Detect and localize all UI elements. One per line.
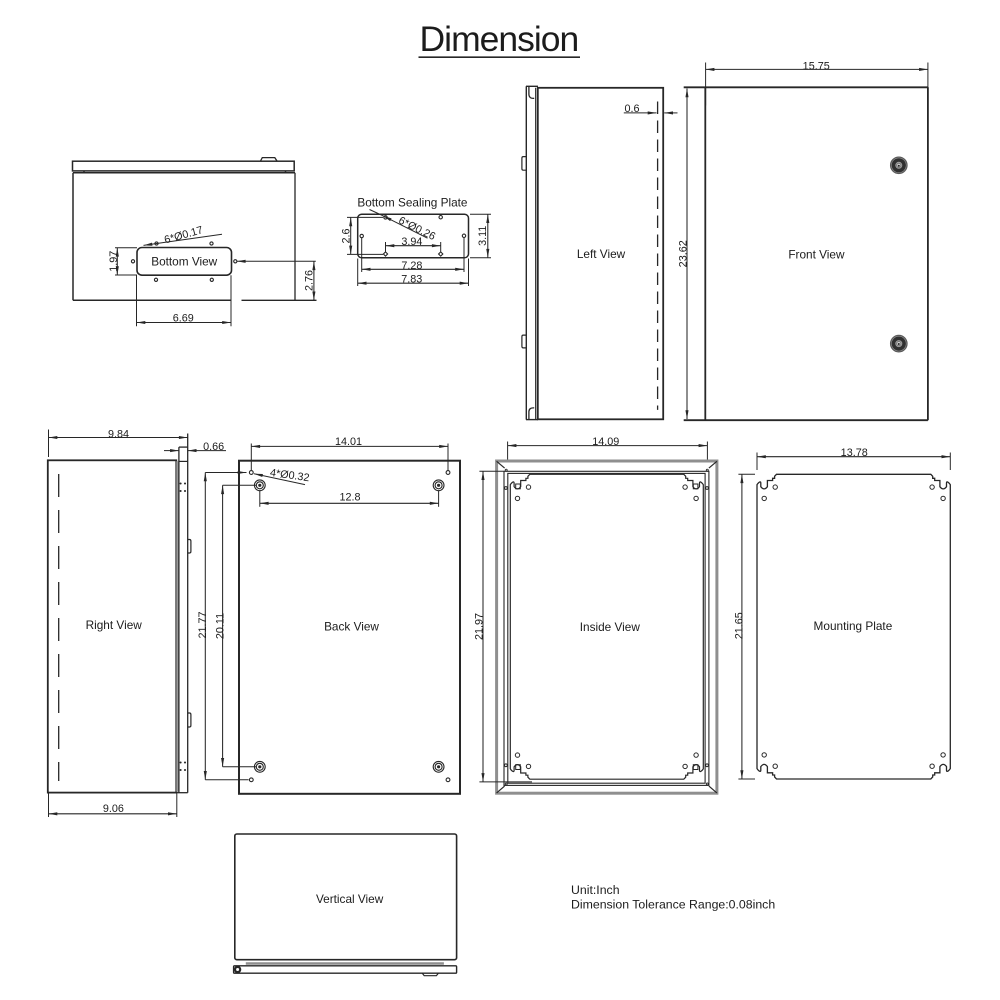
svg-text:14.09: 14.09 — [592, 436, 619, 448]
svg-text:Front View: Front View — [788, 247, 845, 261]
svg-text:Bottom Sealing Plate: Bottom Sealing Plate — [357, 195, 468, 209]
svg-text:2.6: 2.6 — [340, 228, 352, 243]
svg-text:21.97: 21.97 — [474, 613, 486, 640]
svg-text:Bottom View: Bottom View — [151, 255, 217, 269]
svg-text:9.84: 9.84 — [108, 428, 129, 440]
svg-text:Dimension Tolerance Range:0.08: Dimension Tolerance Range:0.08inch — [571, 898, 775, 912]
svg-text:1.97: 1.97 — [108, 251, 120, 272]
svg-text:9.06: 9.06 — [103, 803, 124, 815]
svg-text:21.65: 21.65 — [733, 612, 745, 639]
svg-text:14.01: 14.01 — [335, 436, 362, 448]
svg-text:Vertical View: Vertical View — [316, 892, 384, 906]
svg-text:3.11: 3.11 — [477, 226, 489, 246]
svg-text:20.11: 20.11 — [214, 613, 226, 639]
svg-text:7.28: 7.28 — [401, 260, 422, 272]
svg-text:15.75: 15.75 — [803, 60, 830, 72]
svg-text:Unit:Inch: Unit:Inch — [571, 883, 620, 897]
svg-text:Back View: Back View — [324, 619, 379, 633]
svg-text:12.8: 12.8 — [339, 491, 360, 503]
svg-text:Left View: Left View — [577, 247, 626, 261]
svg-text:Dimension: Dimension — [420, 19, 579, 59]
svg-text:13.78: 13.78 — [841, 447, 868, 459]
svg-text:6.69: 6.69 — [173, 313, 194, 325]
svg-text:23.62: 23.62 — [677, 240, 689, 267]
svg-text:Right View: Right View — [86, 618, 143, 632]
svg-text:2.76: 2.76 — [303, 270, 315, 291]
svg-text:7.83: 7.83 — [401, 274, 422, 286]
svg-text:0.66: 0.66 — [203, 441, 224, 453]
svg-text:Mounting Plate: Mounting Plate — [814, 619, 893, 633]
svg-text:3.94: 3.94 — [401, 236, 422, 248]
svg-text:Inside View: Inside View — [580, 620, 641, 634]
svg-text:21.77: 21.77 — [197, 611, 209, 638]
